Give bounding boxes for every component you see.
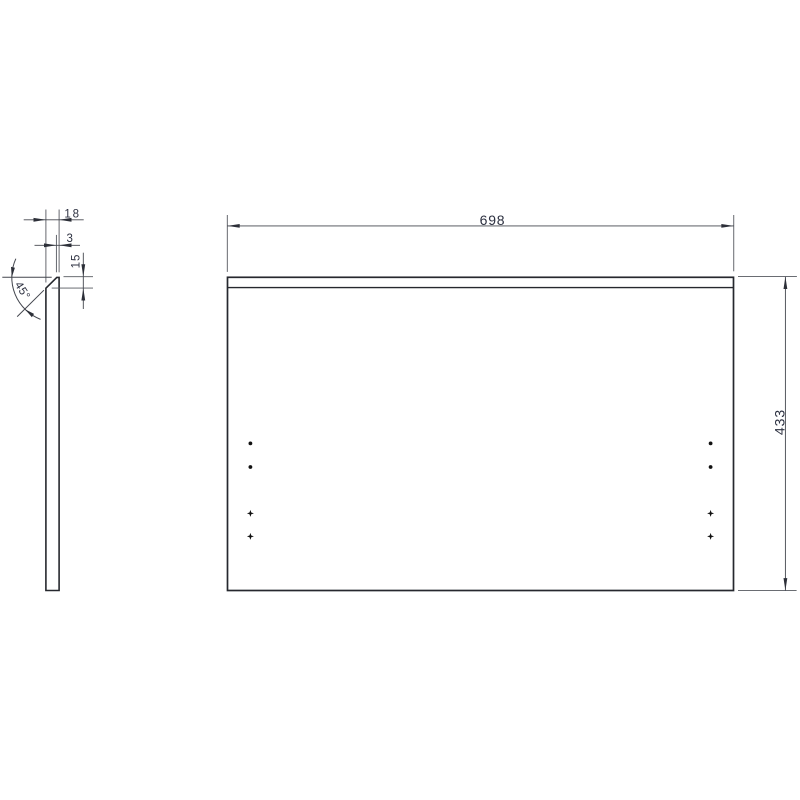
svg-text:698: 698 bbox=[480, 212, 506, 228]
svg-text:18: 18 bbox=[64, 208, 80, 220]
svg-text:3: 3 bbox=[66, 233, 72, 245]
svg-text:15: 15 bbox=[71, 254, 83, 269]
svg-text:433: 433 bbox=[771, 409, 787, 435]
